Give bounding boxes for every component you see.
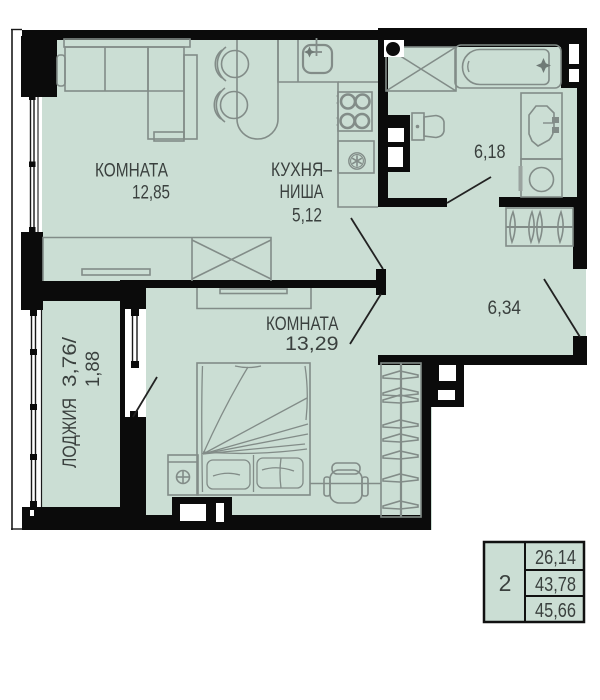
svg-text:ЛОДЖИЯ: ЛОДЖИЯ [59, 398, 81, 468]
svg-text:1,88: 1,88 [82, 351, 104, 387]
svg-text:5,12: 5,12 [292, 205, 322, 227]
svg-text:НИША: НИША [280, 181, 324, 203]
svg-text:6,34: 6,34 [488, 297, 522, 319]
svg-text:3,76/: 3,76/ [59, 336, 81, 387]
svg-text:43,78: 43,78 [535, 574, 576, 596]
svg-text:45,66: 45,66 [535, 600, 576, 622]
svg-text:6,18: 6,18 [474, 141, 506, 163]
svg-text:13,29: 13,29 [285, 333, 339, 355]
svg-text:2: 2 [499, 570, 512, 596]
svg-text:КОМНАТА: КОМНАТА [95, 160, 168, 182]
svg-text:26,14: 26,14 [535, 547, 576, 569]
svg-text:12,85: 12,85 [132, 182, 170, 204]
svg-text:КУХНЯ–: КУХНЯ– [271, 159, 332, 181]
svg-text:КОМНАТА: КОМНАТА [266, 313, 339, 335]
